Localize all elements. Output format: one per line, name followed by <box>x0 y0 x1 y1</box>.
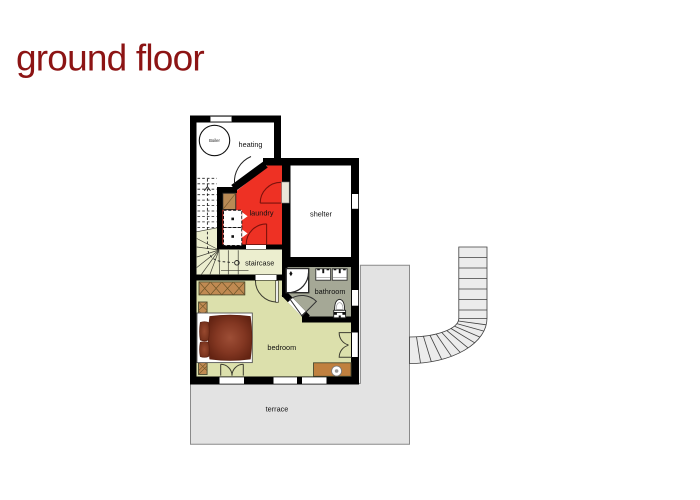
svg-text:Boiler: Boiler <box>209 138 220 143</box>
svg-text:bathroom: bathroom <box>315 287 346 296</box>
svg-text:laundry: laundry <box>250 209 274 218</box>
svg-text:shelter: shelter <box>310 209 332 218</box>
svg-text:staircase: staircase <box>245 259 274 268</box>
svg-text:bedroom: bedroom <box>267 343 296 352</box>
svg-text:ground floor: ground floor <box>16 38 204 79</box>
svg-text:heating: heating <box>239 140 263 149</box>
svg-text:terrace: terrace <box>266 405 289 414</box>
